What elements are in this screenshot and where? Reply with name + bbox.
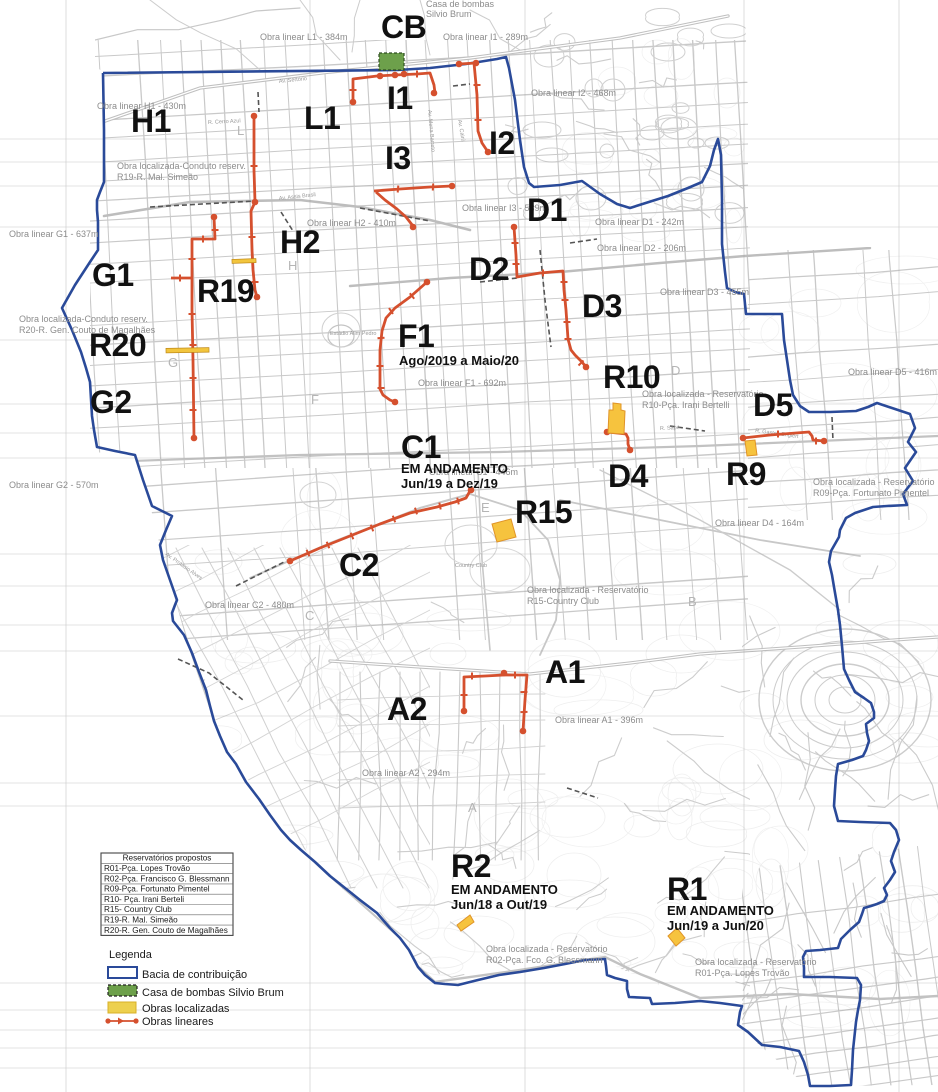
svg-text:D3: D3 bbox=[582, 288, 622, 324]
svg-text:Ago/2019 a Maio/20: Ago/2019 a Maio/20 bbox=[399, 353, 519, 368]
svg-text:D4: D4 bbox=[608, 458, 649, 494]
svg-text:L: L bbox=[237, 123, 244, 138]
svg-text:R01-Pça. Lopes Trovão: R01-Pça. Lopes Trovão bbox=[104, 864, 190, 873]
svg-text:Obra localizada - Reservatório: Obra localizada - Reservatório bbox=[813, 477, 935, 487]
svg-text:Reservatórios propostos: Reservatórios propostos bbox=[123, 854, 212, 863]
svg-text:R09-Pça. Fortunato Pimentel: R09-Pça. Fortunato Pimentel bbox=[104, 885, 210, 894]
svg-text:Obra localizada-Conduto reserv: Obra localizada-Conduto reserv. bbox=[19, 314, 148, 324]
svg-text:R01-Pça. Lopes Trovão: R01-Pça. Lopes Trovão bbox=[695, 968, 790, 978]
svg-text:Obra localizada - Reservatório: Obra localizada - Reservatório bbox=[527, 585, 649, 595]
svg-text:Obra linear C2 - 480m: Obra linear C2 - 480m bbox=[205, 600, 294, 610]
svg-text:Obra linear D3 - 455m: Obra linear D3 - 455m bbox=[660, 287, 749, 297]
svg-text:R19-R. Mal. Simeão: R19-R. Mal. Simeão bbox=[104, 916, 178, 925]
svg-text:R09-Pça. Fortunato Pimentel: R09-Pça. Fortunato Pimentel bbox=[813, 488, 929, 498]
svg-text:Jun/19 a Jun/20: Jun/19 a Jun/20 bbox=[667, 918, 764, 933]
svg-text:Obra linear L1 - 384m: Obra linear L1 - 384m bbox=[260, 32, 348, 42]
svg-text:G: G bbox=[168, 355, 178, 370]
svg-text:R15: R15 bbox=[515, 494, 572, 530]
svg-text:D5: D5 bbox=[753, 387, 793, 423]
svg-text:R10-Pça. Irani Bertelli: R10-Pça. Irani Bertelli bbox=[642, 400, 730, 410]
svg-text:G2: G2 bbox=[90, 384, 132, 420]
svg-text:Obra localizada - Reservatório: Obra localizada - Reservatório bbox=[695, 957, 817, 967]
svg-text:Obra linear D2 - 206m: Obra linear D2 - 206m bbox=[597, 243, 686, 253]
svg-text:C1: C1 bbox=[401, 429, 441, 465]
svg-text:Obras lineares: Obras lineares bbox=[142, 1016, 214, 1028]
svg-text:A1: A1 bbox=[545, 654, 585, 690]
svg-text:Obra linear F1 - 692m: Obra linear F1 - 692m bbox=[418, 378, 506, 388]
svg-text:Obra linear I2 - 468m: Obra linear I2 - 468m bbox=[531, 88, 616, 98]
svg-text:Silvio Brum: Silvio Brum bbox=[426, 9, 472, 19]
svg-text:C: C bbox=[305, 608, 314, 623]
svg-text:I1: I1 bbox=[387, 80, 413, 116]
svg-text:Casa de bombas: Casa de bombas bbox=[426, 0, 495, 9]
svg-text:Obra localizada - Reservatório: Obra localizada - Reservatório bbox=[486, 944, 608, 954]
svg-text:EM ANDAMENTO: EM ANDAMENTO bbox=[401, 461, 508, 476]
svg-text:F1: F1 bbox=[398, 318, 434, 354]
svg-text:Obra linear D1 - 242m: Obra linear D1 - 242m bbox=[595, 217, 684, 227]
svg-text:R1: R1 bbox=[667, 871, 707, 907]
svg-text:Jun/19 a Dez/19: Jun/19 a Dez/19 bbox=[401, 476, 498, 491]
svg-text:C2: C2 bbox=[339, 547, 379, 583]
svg-text:Obra linear A2 - 294m: Obra linear A2 - 294m bbox=[362, 768, 450, 778]
svg-text:R19-R. Mal. Simeão: R19-R. Mal. Simeão bbox=[117, 172, 198, 182]
svg-text:Bacia de contribuição: Bacia de contribuição bbox=[142, 969, 247, 981]
svg-text:Casa de bombas Silvio Brum: Casa de bombas Silvio Brum bbox=[142, 987, 284, 999]
svg-text:Country Club: Country Club bbox=[455, 563, 487, 569]
svg-text:Obra linear I1 - 289m: Obra linear I1 - 289m bbox=[443, 32, 528, 42]
svg-text:R15- Country Club: R15- Country Club bbox=[104, 905, 172, 914]
svg-text:E: E bbox=[481, 500, 490, 515]
svg-text:Obra localizada-Conduto reserv: Obra localizada-Conduto reserv. bbox=[117, 161, 246, 171]
svg-text:Obras localizadas: Obras localizadas bbox=[142, 1003, 230, 1015]
svg-text:I3: I3 bbox=[385, 140, 411, 176]
svg-text:Obra linear G1 - 637m: Obra linear G1 - 637m bbox=[9, 229, 99, 239]
svg-text:R10- Pça. Irani Berteli: R10- Pça. Irani Berteli bbox=[104, 895, 184, 904]
svg-text:H: H bbox=[288, 258, 297, 273]
svg-text:B: B bbox=[688, 594, 697, 609]
svg-text:A2: A2 bbox=[387, 691, 427, 727]
svg-text:R. Sapé: R. Sapé bbox=[660, 425, 680, 432]
svg-text:R15-Country Club: R15-Country Club bbox=[527, 596, 599, 606]
svg-text:Obra linear G2 - 570m: Obra linear G2 - 570m bbox=[9, 480, 99, 490]
svg-text:R20: R20 bbox=[89, 327, 146, 363]
svg-text:R20-R. Gen. Couto de Magalhães: R20-R. Gen. Couto de Magalhães bbox=[104, 926, 228, 935]
svg-text:F: F bbox=[311, 392, 319, 407]
svg-text:Jun/18 a Out/19: Jun/18 a Out/19 bbox=[451, 897, 547, 912]
svg-text:EM ANDAMENTO: EM ANDAMENTO bbox=[451, 882, 558, 897]
svg-text:D2: D2 bbox=[469, 251, 509, 287]
svg-text:R02-Pça. Francisco G. Blessman: R02-Pça. Francisco G. Blessmann bbox=[104, 874, 230, 883]
svg-text:R02-Pça. Fco. G. Blessmann: R02-Pça. Fco. G. Blessmann bbox=[486, 955, 603, 965]
svg-text:G1: G1 bbox=[92, 257, 134, 293]
svg-text:H1: H1 bbox=[131, 103, 171, 139]
svg-text:Estádio Alim Pedro: Estádio Alim Pedro bbox=[330, 331, 376, 337]
svg-text:D: D bbox=[671, 363, 680, 378]
svg-text:I2: I2 bbox=[489, 125, 515, 161]
svg-text:Obra linear H2 - 410m: Obra linear H2 - 410m bbox=[307, 218, 396, 228]
svg-text:R10: R10 bbox=[603, 359, 660, 395]
svg-text:Obra linear D5 - 416m: Obra linear D5 - 416m bbox=[848, 367, 937, 377]
svg-text:L1: L1 bbox=[304, 100, 340, 136]
svg-text:EM ANDAMENTO: EM ANDAMENTO bbox=[667, 903, 774, 918]
svg-text:R9: R9 bbox=[726, 456, 766, 492]
svg-text:D1: D1 bbox=[527, 192, 567, 228]
svg-text:R2: R2 bbox=[451, 848, 491, 884]
svg-text:R19: R19 bbox=[197, 273, 254, 309]
svg-text:Obra localizada - Reservatório: Obra localizada - Reservatório bbox=[642, 389, 764, 399]
svg-text:H2: H2 bbox=[280, 224, 320, 260]
svg-text:A: A bbox=[468, 800, 477, 815]
svg-text:Obra linear A1 - 396m: Obra linear A1 - 396m bbox=[555, 715, 643, 725]
svg-text:CB: CB bbox=[381, 9, 426, 45]
svg-text:Obra linear D4 - 164m: Obra linear D4 - 164m bbox=[715, 518, 804, 528]
svg-text:Legenda: Legenda bbox=[109, 949, 153, 961]
